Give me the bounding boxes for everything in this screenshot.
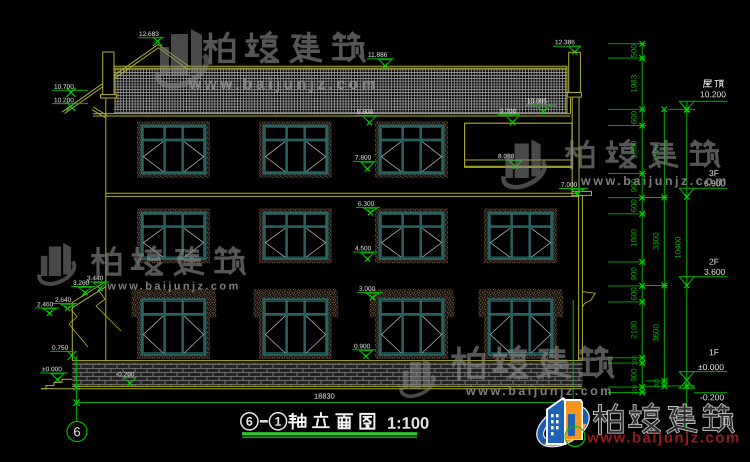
svg-text:-0.200: -0.200 bbox=[700, 392, 724, 402]
svg-text:www.baijunjz.com: www.baijunjz.com bbox=[188, 76, 379, 93]
svg-text:600: 600 bbox=[630, 287, 639, 301]
svg-text:10.700: 10.700 bbox=[54, 84, 74, 91]
svg-text:1F: 1F bbox=[709, 347, 719, 357]
svg-text:6: 6 bbox=[73, 424, 80, 439]
svg-text:4.500: 4.500 bbox=[355, 245, 372, 252]
svg-text:www.baijunjz.com: www.baijunjz.com bbox=[580, 174, 729, 188]
svg-text:2100: 2100 bbox=[630, 320, 639, 338]
svg-text:3.440: 3.440 bbox=[87, 275, 104, 282]
svg-text:3600: 3600 bbox=[652, 324, 661, 342]
svg-text:±0.000: ±0.000 bbox=[42, 366, 62, 373]
svg-text:12.683: 12.683 bbox=[139, 31, 159, 38]
svg-text:10400: 10400 bbox=[674, 236, 683, 259]
svg-text:1800: 1800 bbox=[630, 228, 639, 246]
svg-text:www.baijunjz.com: www.baijunjz.com bbox=[465, 384, 614, 398]
svg-text:18830: 18830 bbox=[314, 392, 335, 401]
svg-text:0.750: 0.750 bbox=[52, 345, 69, 352]
svg-text:12.386: 12.386 bbox=[555, 39, 575, 46]
svg-text:900: 900 bbox=[630, 368, 639, 382]
svg-text:2.460: 2.460 bbox=[37, 301, 54, 308]
svg-text:1983: 1983 bbox=[630, 74, 639, 92]
svg-text:10.200: 10.200 bbox=[700, 89, 726, 99]
svg-text:11.886: 11.886 bbox=[368, 52, 388, 59]
svg-text:3.000: 3.000 bbox=[359, 286, 376, 293]
svg-text:±0.000: ±0.000 bbox=[698, 362, 724, 372]
svg-text:200: 200 bbox=[632, 384, 639, 395]
svg-text:7.000: 7.000 bbox=[561, 182, 578, 189]
svg-text:200: 200 bbox=[632, 355, 639, 366]
svg-text:0.900: 0.900 bbox=[354, 343, 371, 350]
svg-text:1:100: 1:100 bbox=[387, 415, 429, 433]
svg-text:9.700: 9.700 bbox=[500, 108, 517, 115]
svg-text:9.600: 9.600 bbox=[357, 109, 374, 116]
svg-text:600: 600 bbox=[630, 110, 639, 124]
svg-text:3.600: 3.600 bbox=[704, 267, 726, 277]
svg-text:1: 1 bbox=[275, 415, 282, 429]
svg-text:200: 200 bbox=[654, 378, 661, 389]
svg-text:3300: 3300 bbox=[652, 232, 661, 250]
svg-text:2.640: 2.640 bbox=[55, 297, 72, 304]
svg-text:600: 600 bbox=[630, 199, 639, 213]
svg-text:7.800: 7.800 bbox=[355, 155, 372, 162]
svg-text:www.baijunjz.com: www.baijunjz.com bbox=[586, 429, 740, 446]
svg-text:900: 900 bbox=[630, 267, 639, 281]
svg-text:10.085: 10.085 bbox=[527, 98, 547, 105]
svg-text:3.260: 3.260 bbox=[73, 280, 90, 287]
svg-text:6.300: 6.300 bbox=[358, 201, 375, 208]
svg-text:6: 6 bbox=[246, 415, 253, 429]
svg-text:2F: 2F bbox=[709, 257, 719, 267]
svg-text:www.baijunjz.com: www.baijunjz.com bbox=[106, 280, 240, 292]
svg-text:500: 500 bbox=[630, 44, 639, 58]
